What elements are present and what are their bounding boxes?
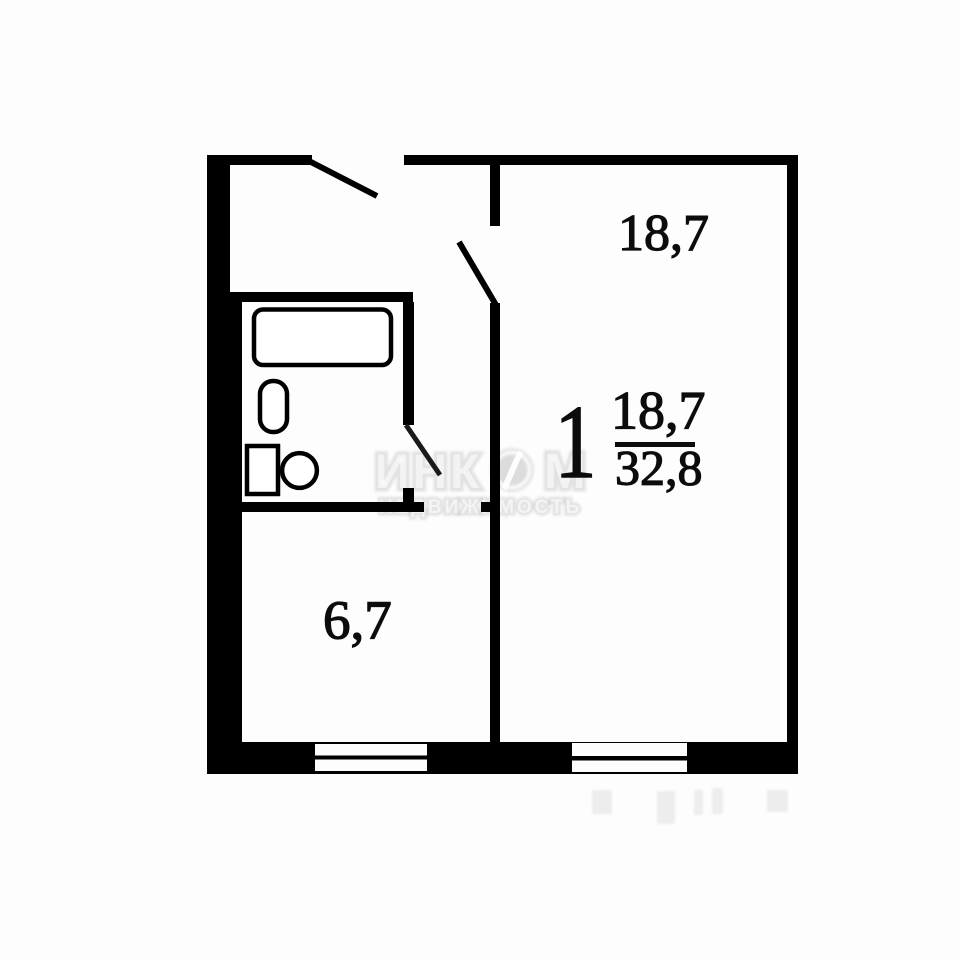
svg-text:18,7: 18,7	[611, 381, 706, 441]
svg-text:1: 1	[555, 383, 597, 500]
svg-text:18,7: 18,7	[618, 205, 709, 262]
svg-text:32,8: 32,8	[615, 440, 703, 496]
svg-text:ИНК: ИНК	[375, 446, 482, 499]
svg-text:6,7: 6,7	[323, 590, 392, 651]
